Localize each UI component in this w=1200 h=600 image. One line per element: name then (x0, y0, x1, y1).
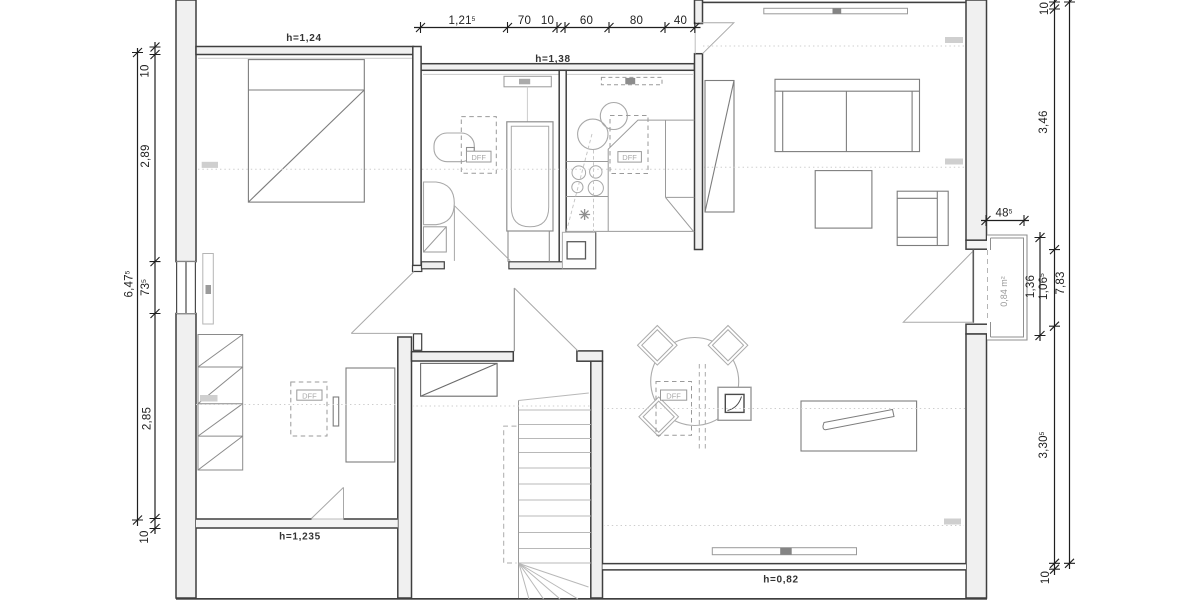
svg-text:2,85: 2,85 (142, 407, 154, 430)
svg-text:1,065: 1,065 (1038, 273, 1050, 300)
svg-text:1,215: 1,215 (448, 15, 475, 27)
svg-text:7,83: 7,83 (1055, 271, 1067, 294)
svg-text:10: 10 (1039, 2, 1051, 15)
svg-text:0,84 m²: 0,84 m² (999, 276, 1009, 307)
svg-text:3,305: 3,305 (1038, 431, 1050, 458)
svg-text:h=1,38: h=1,38 (535, 54, 571, 65)
svg-text:40: 40 (674, 15, 687, 27)
svg-text:DFF: DFF (622, 153, 637, 162)
svg-text:h=0,82: h=0,82 (763, 575, 799, 586)
svg-text:DFF: DFF (666, 391, 681, 400)
svg-text:h=1,24: h=1,24 (286, 33, 322, 44)
svg-text:60: 60 (580, 15, 593, 27)
svg-text:10: 10 (140, 64, 152, 77)
svg-text:3,46: 3,46 (1038, 110, 1050, 133)
svg-text:10: 10 (1040, 571, 1052, 584)
svg-text:DFF: DFF (302, 391, 317, 400)
svg-text:DFF: DFF (471, 153, 486, 162)
svg-text:1,36: 1,36 (1025, 275, 1037, 298)
svg-text:70: 70 (518, 15, 531, 27)
svg-text:6,475: 6,475 (124, 270, 136, 297)
svg-text:h=1,235: h=1,235 (279, 532, 321, 543)
svg-text:80: 80 (630, 15, 643, 27)
svg-text:2,89: 2,89 (140, 144, 152, 167)
svg-text:10: 10 (541, 15, 554, 27)
svg-text:10: 10 (139, 530, 151, 543)
